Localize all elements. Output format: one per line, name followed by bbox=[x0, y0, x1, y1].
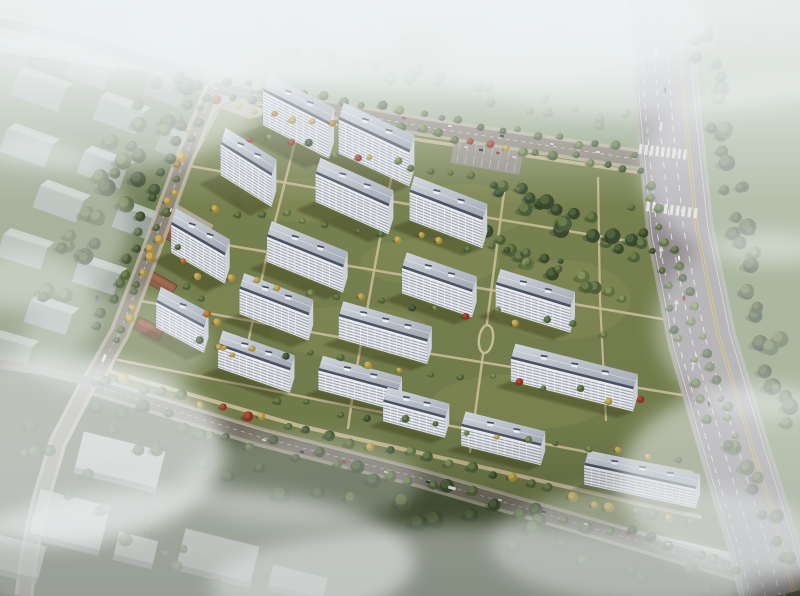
aerial-rendering-canvas bbox=[0, 0, 800, 596]
fog-patch bbox=[180, 435, 420, 525]
aerial-rendering bbox=[0, 0, 800, 596]
vehicle bbox=[678, 255, 681, 260]
horizon-haze bbox=[0, 0, 800, 205]
